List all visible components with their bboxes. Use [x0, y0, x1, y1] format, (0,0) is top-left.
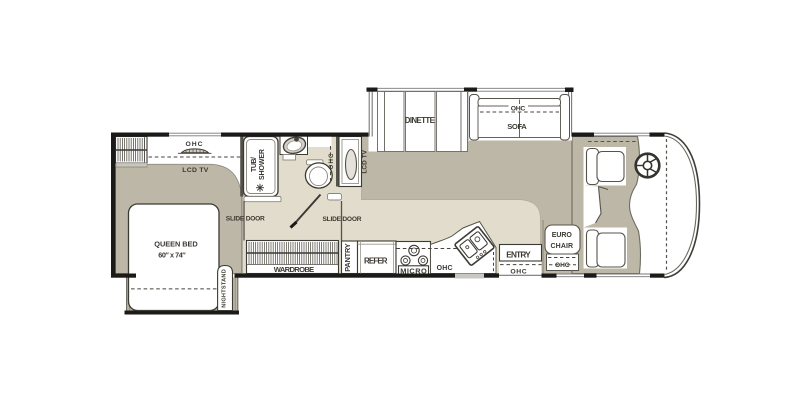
svg-text:NIGHTSTAND: NIGHTSTAND: [221, 269, 227, 308]
svg-text:LCD TV: LCD TV: [361, 149, 368, 173]
svg-text:PANTRY: PANTRY: [343, 243, 352, 272]
svg-text:60″ x 74″: 60″ x 74″: [158, 250, 186, 259]
svg-text:SOFA: SOFA: [507, 122, 527, 131]
svg-text:SLIDE DOOR: SLIDE DOOR: [323, 216, 362, 223]
svg-text:OHC: OHC: [328, 153, 335, 170]
svg-text:LCD TV: LCD TV: [182, 167, 208, 174]
svg-text:SLIDE DOOR: SLIDE DOOR: [226, 215, 265, 222]
svg-text:SHOWER: SHOWER: [259, 149, 266, 180]
svg-text:OHC: OHC: [510, 268, 526, 275]
svg-text:WARDROBE: WARDROBE: [274, 265, 315, 274]
svg-text:MICRO: MICRO: [400, 267, 427, 276]
svg-text:EURO: EURO: [552, 232, 573, 239]
svg-text:OHC: OHC: [555, 262, 570, 269]
svg-text:OHC: OHC: [437, 265, 453, 272]
svg-text:OHC: OHC: [186, 141, 203, 148]
svg-text:REFER: REFER: [364, 257, 388, 266]
svg-text:QUEEN BED: QUEEN BED: [154, 240, 198, 249]
svg-text:CHAIR: CHAIR: [551, 243, 574, 250]
svg-text:TUB/: TUB/: [251, 157, 258, 172]
svg-text:ENTRY: ENTRY: [506, 251, 531, 260]
svg-text:OHC: OHC: [511, 106, 526, 113]
svg-text:DINETTE: DINETTE: [405, 116, 435, 125]
